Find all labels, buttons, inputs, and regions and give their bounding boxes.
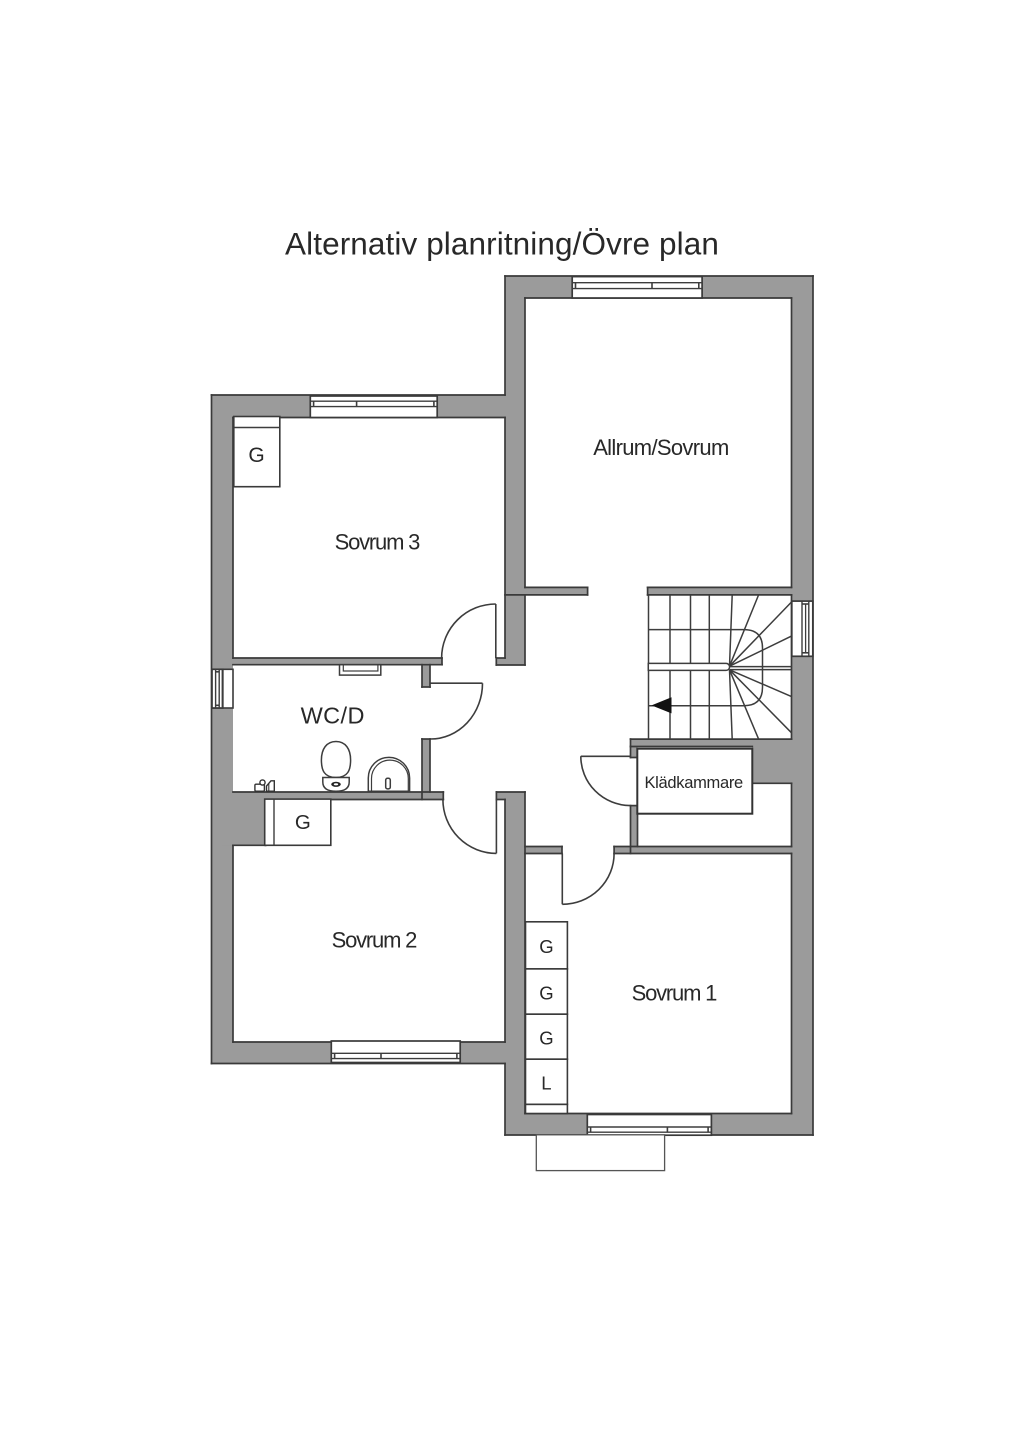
svg-text:G: G: [295, 811, 311, 834]
svg-text:G: G: [539, 936, 553, 957]
svg-text:Sovrum 2: Sovrum 2: [332, 928, 418, 953]
svg-text:G: G: [248, 444, 264, 467]
svg-text:Sovrum 3: Sovrum 3: [335, 530, 421, 555]
svg-text:Sovrum 1: Sovrum 1: [632, 981, 718, 1006]
svg-text:WC/D: WC/D: [301, 703, 365, 729]
svg-text:Allrum/Sovrum: Allrum/Sovrum: [593, 435, 728, 460]
svg-text:G: G: [539, 982, 553, 1003]
svg-text:G: G: [539, 1027, 553, 1048]
svg-text:Klädkammare: Klädkammare: [644, 774, 743, 792]
svg-text:Alternativ planritning/Övre pl: Alternativ planritning/Övre plan: [285, 225, 719, 261]
svg-text:L: L: [541, 1073, 551, 1094]
